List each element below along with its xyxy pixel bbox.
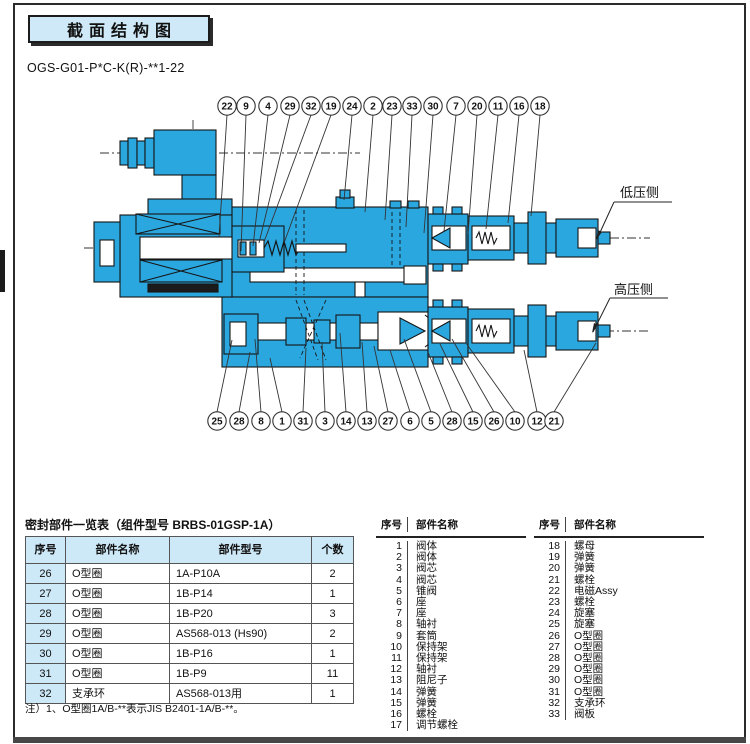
svg-text:25: 25 [211, 417, 223, 428]
cartridge-high-pressure [428, 300, 610, 364]
svg-text:13: 13 [361, 417, 373, 428]
seal-header-model: 部件型号 [170, 537, 312, 564]
svg-text:21: 21 [548, 417, 560, 428]
parts-row: 25旋塞 [534, 619, 704, 630]
svg-text:1: 1 [279, 417, 285, 428]
parts-list-right-header: 序号 部件名称 [534, 517, 704, 538]
seal-header-name: 部件名称 [66, 537, 170, 564]
svg-text:8: 8 [258, 417, 264, 428]
svg-text:26: 26 [488, 417, 500, 428]
seal-model: 1B-P14 [170, 584, 312, 604]
svg-text:9: 9 [243, 102, 249, 113]
svg-text:4: 4 [265, 102, 271, 113]
parts-row: 13阻尼子 [376, 675, 526, 686]
parts-list-left-header: 序号 部件名称 [376, 517, 526, 538]
parts-list-left: 序号 部件名称 1阀体 2阀体 3阀芯 4阀芯 5锥阀 6座 7座 8轴衬 9套… [376, 517, 526, 731]
seal-header-no: 序号 [26, 537, 66, 564]
seal-row: 29 O型圈 AS568-013 (Hs90) 2 [26, 624, 354, 644]
seal-model: 1A-P10A [170, 564, 312, 584]
seal-row: 26 O型圈 1A-P10A 2 [26, 564, 354, 584]
svg-text:5: 5 [428, 417, 434, 428]
cartridge-low-pressure [428, 207, 610, 271]
seal-name: O型圈 [66, 604, 170, 624]
svg-text:16: 16 [513, 102, 525, 113]
svg-text:11: 11 [493, 102, 504, 113]
seal-header-row: 序号 部件名称 部件型号 个数 [26, 537, 354, 564]
svg-text:6: 6 [407, 417, 413, 428]
seal-model: 1B-P9 [170, 664, 312, 684]
svg-text:28: 28 [446, 417, 458, 428]
seal-row: 31 O型圈 1B-P9 11 [26, 664, 354, 684]
seal-name: O型圈 [66, 624, 170, 644]
parts-row: 17调节螺栓 [376, 720, 526, 731]
svg-text:2: 2 [370, 102, 376, 113]
svg-text:20: 20 [471, 102, 483, 113]
svg-text:10: 10 [509, 417, 521, 428]
seal-qty: 3 [312, 604, 354, 624]
svg-text:28: 28 [233, 417, 245, 428]
seal-name: O型圈 [66, 644, 170, 664]
parts-row: 30O型圈 [534, 675, 704, 686]
seal-qty: 1 [312, 584, 354, 604]
seal-header-qty: 个数 [312, 537, 354, 564]
svg-text:低压侧: 低压侧 [620, 185, 659, 200]
parts-row: 33阀板 [534, 709, 704, 720]
seal-model: 1B-P20 [170, 604, 312, 624]
seal-model: 1B-P16 [170, 644, 312, 664]
parts-row: 20弹簧 [534, 563, 704, 574]
seal-no: 30 [26, 644, 66, 664]
svg-text:29: 29 [284, 102, 296, 113]
svg-text:32: 32 [305, 102, 317, 113]
svg-text:7: 7 [453, 102, 459, 113]
seal-name: O型圈 [66, 664, 170, 684]
seal-qty: 2 [312, 624, 354, 644]
seal-no: 26 [26, 564, 66, 584]
seal-qty: 1 [312, 684, 354, 704]
svg-text:12: 12 [531, 417, 543, 428]
seal-qty: 2 [312, 564, 354, 584]
parts-row: 8轴衬 [376, 619, 526, 630]
svg-text:高压侧: 高压侧 [614, 282, 653, 297]
col-header-name: 部件名称 [407, 517, 458, 532]
svg-text:30: 30 [427, 102, 439, 113]
svg-text:14: 14 [340, 417, 352, 428]
svg-text:3: 3 [322, 417, 328, 428]
seal-table-title: 密封部件一览表（组件型号 BRBS-01GSP-1A） [25, 516, 280, 533]
seal-parts-table: 序号 部件名称 部件型号 个数 26 O型圈 1A-P10A 2 27 O型圈 … [25, 536, 354, 704]
svg-text:18: 18 [534, 102, 546, 113]
svg-text:22: 22 [221, 102, 233, 113]
svg-text:24: 24 [346, 102, 358, 113]
col-header-no: 序号 [534, 517, 565, 532]
seal-qty: 1 [312, 644, 354, 664]
seal-row: 28 O型圈 1B-P20 3 [26, 604, 354, 624]
seal-no: 29 [26, 624, 66, 644]
catalog-page: 截面结构图 OGS-G01-P*C-K(R)-**1-22 [0, 0, 750, 744]
svg-text:27: 27 [382, 417, 394, 428]
svg-text:23: 23 [386, 102, 398, 113]
col-header-name: 部件名称 [565, 517, 616, 532]
seal-no: 31 [26, 664, 66, 684]
seal-name: O型圈 [66, 584, 170, 604]
seal-name: O型圈 [66, 564, 170, 584]
col-header-no: 序号 [376, 517, 407, 532]
valve-body-bottom [222, 297, 445, 367]
seal-table-note: 注）1、O型圈1A/B-**表示JIS B2401-1A/B-**。 [25, 701, 244, 716]
seal-row: 27 O型圈 1B-P14 1 [26, 584, 354, 604]
svg-text:33: 33 [406, 102, 418, 113]
seal-no: 27 [26, 584, 66, 604]
svg-text:31: 31 [297, 417, 309, 428]
parts-list-right: 序号 部件名称 18螺母 19弹簧 20弹簧 21螺栓 22电磁Assy 23螺… [534, 517, 704, 720]
seal-no: 28 [26, 604, 66, 624]
seal-row: 30 O型圈 1B-P16 1 [26, 644, 354, 664]
seal-qty: 11 [312, 664, 354, 684]
svg-text:19: 19 [325, 102, 337, 113]
seal-model: AS568-013 (Hs90) [170, 624, 312, 644]
svg-text:15: 15 [467, 417, 479, 428]
parts-row: 3阀芯 [376, 563, 526, 574]
